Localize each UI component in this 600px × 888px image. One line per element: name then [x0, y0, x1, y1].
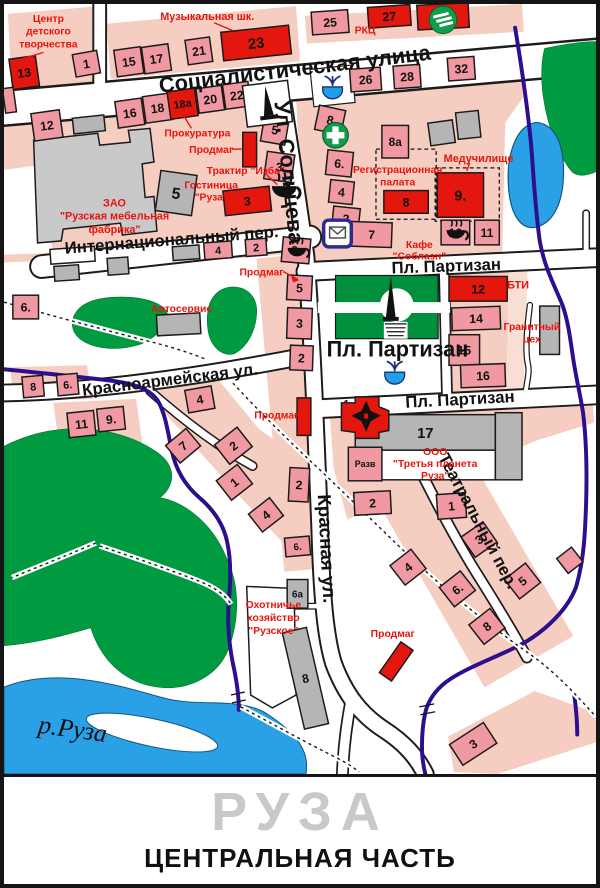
svg-text:9.: 9. [105, 412, 117, 427]
poi-label-muz-shkola: Музыкальная шк. [160, 11, 254, 23]
building-6.: 6. [325, 150, 353, 177]
building-12: 12 [449, 276, 507, 301]
building-25: 25 [311, 10, 349, 35]
poi-label-bti: БТИ [507, 279, 529, 291]
sberbank-icon [429, 6, 457, 34]
svg-text:16: 16 [122, 106, 138, 122]
building-11: 11 [475, 220, 500, 245]
svg-text:6.: 6. [293, 542, 302, 554]
svg-text:18: 18 [150, 101, 166, 117]
poi-label-avtoservis: Автосервис [151, 304, 212, 315]
building [156, 313, 200, 336]
building [72, 115, 105, 134]
poi-label-prodmag-1: Продмаг [189, 145, 234, 156]
svg-text:8а: 8а [389, 135, 403, 149]
svg-text:6.: 6. [63, 379, 73, 392]
building-6.: 6. [13, 295, 39, 319]
map-footer: РУЗА ЦЕНТРАЛЬНАЯ ЧАСТЬ [4, 783, 596, 887]
svg-text:12: 12 [39, 118, 55, 134]
building-8: 8 [22, 375, 44, 397]
building [243, 132, 257, 167]
svg-text:2: 2 [369, 496, 377, 510]
building [428, 120, 456, 146]
poi-label-meduchilishche: Медучилище [444, 153, 514, 165]
svg-text:17: 17 [149, 51, 165, 67]
svg-text:6.: 6. [334, 156, 346, 171]
pharmacy-icon [323, 122, 349, 148]
building-16: 16 [115, 98, 145, 128]
building-2: 2 [290, 345, 314, 370]
poi-label-traktir-izba: Трактир "Изба" [207, 165, 285, 177]
poi-label-rkts: РКЦ [355, 26, 376, 37]
building-12: 12 [31, 110, 63, 141]
building-13: 13 [9, 56, 40, 90]
svg-text:8: 8 [30, 381, 37, 393]
svg-text:2: 2 [298, 351, 305, 365]
svg-text:26: 26 [358, 72, 373, 87]
poi-label-prodmag-2: Продмаг [239, 267, 284, 278]
poi-label-prodmag-3: Продмаг [254, 411, 299, 422]
map-page: 1311517212312161818а202225272628325336.5… [0, 0, 600, 888]
svg-text:14: 14 [469, 312, 483, 326]
svg-text:6а: 6а [292, 589, 303, 600]
building [297, 398, 311, 436]
building-5: 5 [155, 170, 197, 215]
building-4: 4 [185, 386, 215, 413]
svg-text:8: 8 [403, 195, 410, 209]
svg-text:11: 11 [480, 226, 493, 240]
post-office-icon [324, 220, 352, 247]
building-11: 11 [67, 410, 96, 437]
svg-text:2: 2 [295, 478, 303, 492]
building-21: 21 [185, 37, 213, 65]
svg-text:13: 13 [17, 65, 33, 81]
svg-text:16: 16 [476, 369, 490, 383]
map-canvas: 1311517212312161818а202225272628325336.5… [4, 4, 596, 774]
svg-text:5: 5 [296, 281, 304, 295]
building [107, 257, 129, 275]
building-32: 32 [447, 56, 475, 81]
svg-text:23: 23 [247, 35, 265, 53]
city-subtitle: ЦЕНТРАЛЬНАЯ ЧАСТЬ [4, 843, 596, 874]
city-title: РУЗА [4, 783, 596, 841]
poi-label-prokuratura: Прокуратура [164, 128, 230, 139]
street-label-partizan-square: Пл. Партизан [327, 336, 469, 361]
building-8: 8 [384, 191, 428, 214]
svg-text:20: 20 [203, 92, 219, 108]
building-15: 15 [114, 47, 144, 77]
partizan-park [318, 275, 450, 338]
building-6.: 6. [284, 536, 310, 557]
building-27: 27 [367, 5, 411, 29]
building [495, 413, 522, 480]
svg-text:28: 28 [400, 70, 415, 85]
svg-text:21: 21 [191, 43, 207, 59]
building-Разв: Разв [348, 447, 382, 481]
building-16: 16 [460, 364, 505, 388]
svg-text:9.: 9. [454, 188, 466, 204]
svg-text:27: 27 [382, 9, 397, 24]
svg-text:17: 17 [417, 426, 433, 442]
svg-text:2: 2 [253, 242, 260, 254]
building-9.: 9. [437, 173, 483, 217]
building-2: 2 [354, 491, 392, 516]
poi-label-ohotniche-hozyaystvo: Охотничьехозяйство"Рузское" [246, 600, 302, 637]
svg-text:12: 12 [471, 282, 485, 296]
svg-text:4: 4 [215, 245, 222, 257]
svg-text:1: 1 [448, 499, 456, 513]
building-8а: 8а [382, 125, 409, 158]
svg-text:32: 32 [454, 62, 469, 77]
building-17: 17 [141, 44, 171, 74]
svg-text:6.: 6. [21, 301, 31, 315]
building-2: 2 [288, 467, 309, 502]
building [456, 110, 481, 139]
svg-text:15: 15 [121, 54, 137, 70]
poi-label-prodmag-4: Продмаг [371, 629, 416, 640]
building-3: 3 [287, 308, 313, 339]
building-4: 4 [328, 180, 354, 205]
building-5: 5 [287, 275, 313, 301]
building-14: 14 [452, 306, 501, 330]
svg-text:3: 3 [296, 317, 303, 331]
svg-text:11: 11 [74, 417, 89, 432]
building [54, 265, 80, 281]
map-area: 1311517212312161818а202225272628325336.5… [4, 4, 596, 777]
building-6.: 6. [56, 373, 78, 395]
svg-text:Разв: Разв [355, 459, 376, 469]
building-9.: 9. [97, 406, 126, 431]
building-1: 1 [72, 50, 100, 77]
svg-text:25: 25 [323, 15, 338, 30]
svg-text:7: 7 [368, 228, 375, 242]
building-7: 7 [351, 221, 392, 247]
